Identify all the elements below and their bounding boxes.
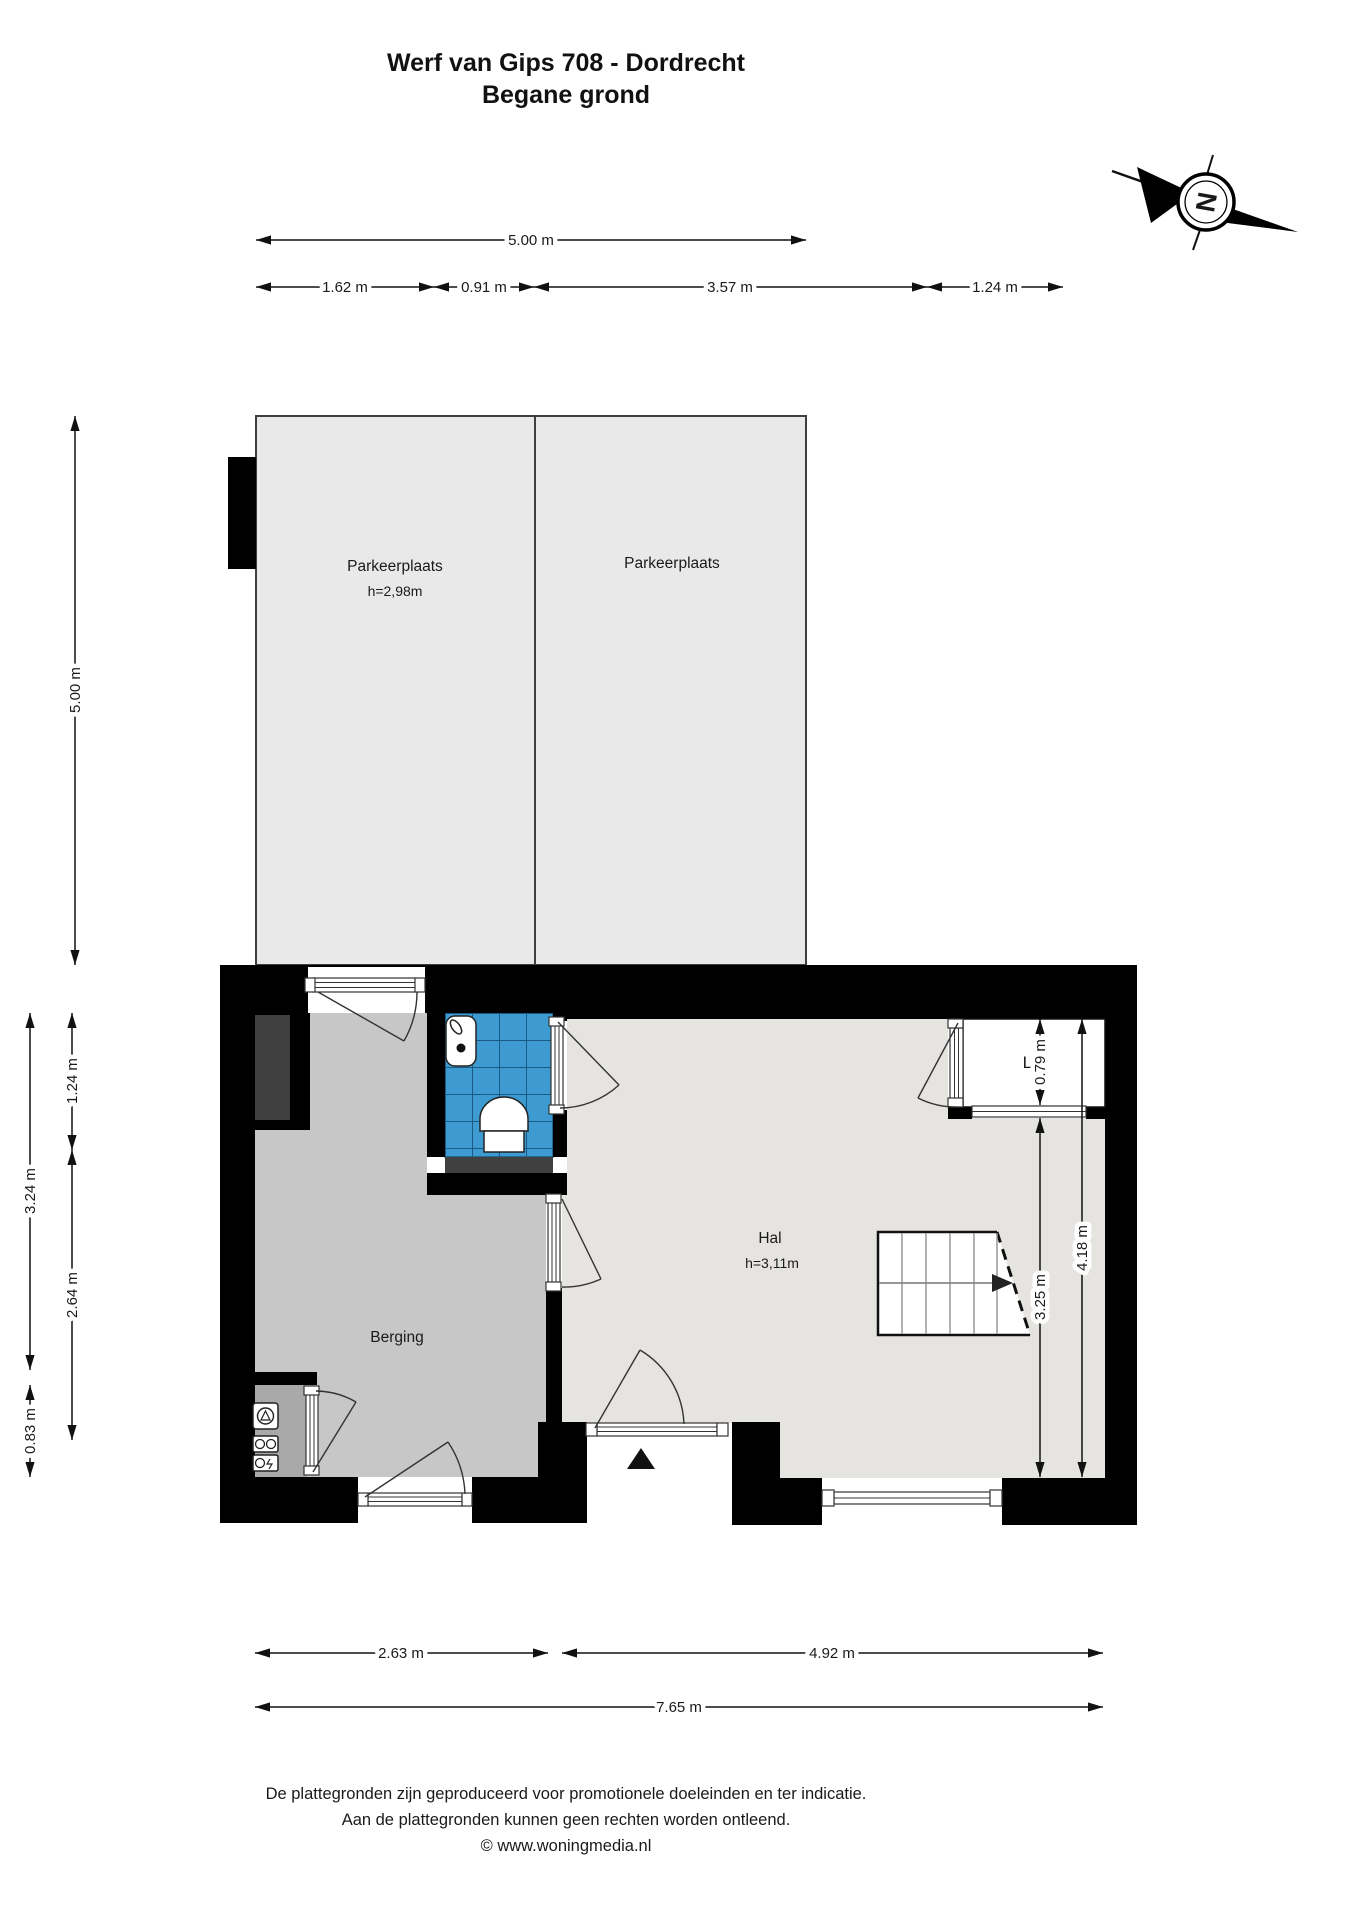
hal-window-opening	[822, 1478, 1002, 1525]
hal-label: Hal	[758, 1230, 781, 1247]
dim-left-1: 5.00 m	[67, 667, 84, 713]
lift-door-opening	[948, 1019, 963, 1107]
page-subtitle: Begane grond	[482, 81, 650, 109]
dim-bottom-1: 2.63 m	[378, 1645, 424, 1662]
sink-icon	[446, 1016, 476, 1066]
entrance-door-opening	[586, 1423, 728, 1436]
footer-copyright: © www.woningmedia.nl	[481, 1837, 652, 1855]
dim-left-4: 2.64 m	[64, 1272, 81, 1318]
parking-left-height: h=2,98m	[368, 583, 423, 599]
footer-disclaimer-2: Aan de plattegronden kunnen geen rechten…	[342, 1811, 791, 1829]
dim-right-1: 0.79 m	[1032, 1039, 1049, 1085]
berging-hal-door-opening	[546, 1194, 561, 1291]
toilet-icon	[480, 1097, 528, 1152]
footer-disclaimer-1: De plattegronden zijn geproduceerd voor …	[266, 1785, 867, 1803]
dim-bottom-2: 4.92 m	[809, 1645, 855, 1662]
dimensions-left: 5.00 m 1.24 m 3.24 m 2.64 m 0.83 m	[22, 416, 84, 1477]
berging-label: Berging	[370, 1329, 423, 1346]
dim-left-2: 1.24 m	[64, 1058, 81, 1104]
entrance-marker-icon	[627, 1448, 655, 1469]
dim-top-2: 0.91 m	[461, 279, 507, 296]
dim-top-3: 3.57 m	[707, 279, 753, 296]
parking-left-label: Parkeerplaats	[347, 558, 443, 575]
parking-area: Parkeerplaats h=2,98m Parkeerplaats	[228, 416, 806, 965]
berging-exterior-door-opening	[358, 1477, 472, 1523]
compass-icon: N	[1112, 155, 1298, 250]
floorplan-page: Werf van Gips 708 - Dordrecht Begane gro…	[0, 0, 1358, 1920]
dim-left-3: 3.24 m	[22, 1168, 39, 1214]
dim-top-1: 1.62 m	[322, 279, 368, 296]
dim-right-2: 3.25 m	[1032, 1274, 1049, 1320]
garage-door-opening	[305, 967, 425, 1013]
parking-wall-stub	[228, 457, 256, 569]
floorplan-svg: Werf van Gips 708 - Dordrecht Begane gro…	[0, 0, 1358, 1920]
boiler-icon	[253, 1403, 278, 1429]
duct-shaft	[255, 1015, 290, 1120]
page-title: Werf van Gips 708 - Dordrecht	[387, 49, 746, 77]
dim-left-5: 0.83 m	[22, 1408, 39, 1454]
dim-bottom-3: 7.65 m	[656, 1699, 702, 1716]
dim-top-4: 1.24 m	[972, 279, 1018, 296]
parking-right-label: Parkeerplaats	[624, 555, 720, 572]
dimensions-top: 5.00 m 1.62 m 0.91 m 3.57 m 1.24 m	[256, 232, 1063, 296]
hal-height-label: h=3,11m	[745, 1255, 799, 1271]
dim-top-total: 5.00 m	[508, 232, 554, 249]
toilet-threshold	[445, 1157, 553, 1173]
dimensions-bottom: 2.63 m 4.92 m 7.65 m	[255, 1645, 1103, 1716]
meter-closet-door-opening	[304, 1386, 319, 1475]
dim-right-3: 4.18 m	[1074, 1225, 1091, 1271]
toilet-door-opening	[549, 1017, 564, 1114]
